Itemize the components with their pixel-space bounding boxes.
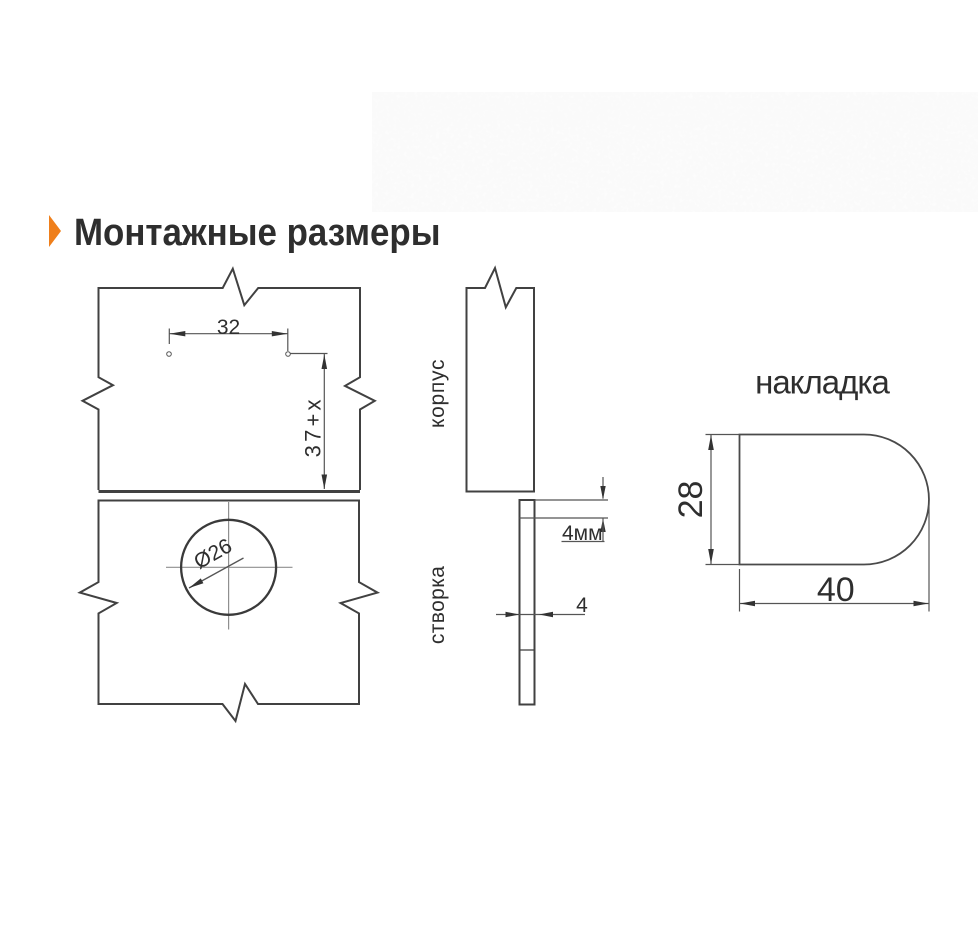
svg-text:створка: створка [426, 566, 449, 645]
svg-text:накладка: накладка [755, 364, 890, 401]
svg-text:4: 4 [576, 594, 588, 617]
svg-text:37+x: 37+x [301, 396, 326, 457]
svg-text:корпус: корпус [426, 359, 449, 428]
svg-text:28: 28 [672, 481, 710, 519]
svg-text:40: 40 [817, 571, 855, 609]
svg-text:32: 32 [217, 316, 240, 339]
